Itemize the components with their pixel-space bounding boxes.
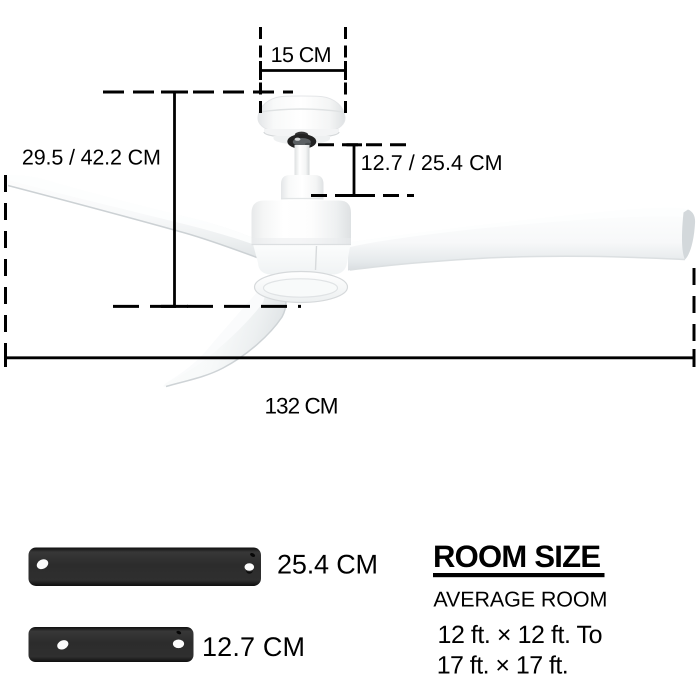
svg-text:132 CM: 132 CM <box>265 393 339 418</box>
svg-text:15 CM: 15 CM <box>271 43 332 67</box>
svg-text:12 ft. × 12 ft. To: 12 ft. × 12 ft. To <box>438 621 603 649</box>
svg-text:17 ft. × 17 ft.: 17 ft. × 17 ft. <box>437 651 569 679</box>
svg-text:AVERAGE ROOM: AVERAGE ROOM <box>433 588 607 612</box>
svg-text:12.7 CM: 12.7 CM <box>202 632 305 662</box>
svg-text:29.5 / 42.2 CM: 29.5 / 42.2 CM <box>22 146 161 170</box>
svg-text:ROOM SIZE: ROOM SIZE <box>433 539 601 574</box>
svg-text:25.4 CM: 25.4 CM <box>277 550 378 580</box>
svg-text:12.7 / 25.4 CM: 12.7 / 25.4 CM <box>361 151 503 175</box>
